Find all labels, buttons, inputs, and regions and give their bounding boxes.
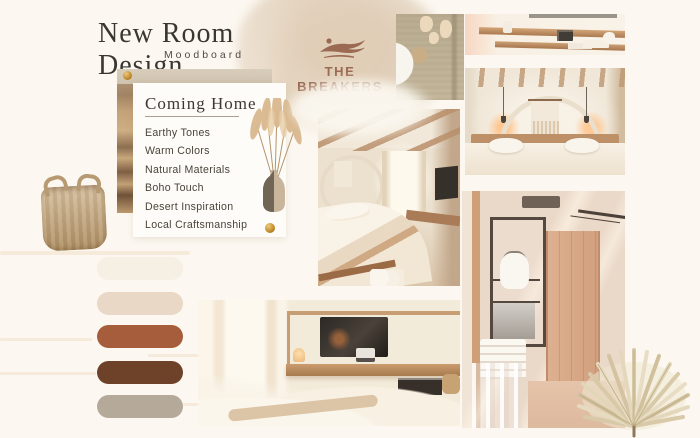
paper-streak (0, 251, 190, 255)
list-item: Desert Inspiration (145, 198, 247, 216)
wood-trim (290, 311, 460, 315)
basket-handle (76, 173, 102, 194)
photo-arch-bedroom (465, 68, 625, 175)
list-item: Warm Colors (145, 142, 247, 160)
photo-tv-lounge (198, 300, 460, 426)
dried-flower (420, 16, 433, 32)
concept-list: Earthy Tones Warm Colors Natural Materia… (145, 124, 247, 234)
pillow (489, 138, 523, 153)
list-item: Natural Materials (145, 161, 247, 179)
door-rail (578, 209, 625, 219)
list-item: Boho Touch (145, 179, 247, 197)
moodboard-canvas: New Room Design Moodboard (0, 0, 700, 438)
ceiling-beams (465, 68, 625, 87)
paper-streak (0, 338, 92, 341)
dried-flower (440, 20, 452, 38)
tv-screen (320, 317, 388, 357)
card-divider (145, 116, 239, 117)
macrame-hanging (531, 101, 559, 137)
dried-palm-leaf (566, 324, 700, 438)
wood-desk (406, 210, 460, 227)
pendant-cord (503, 87, 504, 117)
desert-photo-strip (117, 76, 134, 213)
paper-streak (0, 372, 96, 375)
tv-screen (435, 166, 458, 200)
leaping-horse-icon (318, 36, 366, 62)
glass-vases (472, 363, 522, 428)
gold-bead (123, 71, 132, 80)
gold-bead (265, 223, 275, 233)
basket-handle (41, 173, 69, 197)
towel-basket (370, 269, 404, 286)
palette-swatch-beige (97, 292, 183, 315)
palette-swatch-terracotta (97, 325, 183, 348)
dried-flower (429, 32, 439, 44)
pendant-cord (586, 87, 587, 117)
watercolor-blob (292, 80, 432, 138)
pillow (565, 138, 599, 153)
minibar (493, 303, 535, 339)
coffee-machine (503, 21, 512, 33)
table-lamp (293, 348, 305, 362)
photo-shelf-console (465, 14, 625, 55)
card-title: Coming Home (145, 94, 257, 114)
pendant-lamp (501, 116, 506, 123)
decor-coral (603, 32, 615, 43)
page-subtitle: Moodboard (98, 49, 310, 61)
tan-banner (117, 69, 272, 84)
radio (356, 348, 375, 362)
palette-swatch-brown (97, 361, 183, 384)
palette-swatch-cream (97, 257, 183, 280)
laptop (557, 30, 573, 41)
jute-basket (40, 184, 107, 251)
list-item: Local Craftsmanship (145, 216, 247, 234)
palette-swatch-taupe (97, 395, 183, 418)
ceiling-vent (522, 196, 560, 208)
hanging-shirt (500, 253, 529, 289)
wood-shelf (286, 364, 460, 376)
tv-edge (529, 14, 617, 18)
macrame-hanging (334, 161, 352, 187)
list-item: Earthy Tones (145, 124, 247, 142)
pendant-lamp (584, 116, 589, 123)
